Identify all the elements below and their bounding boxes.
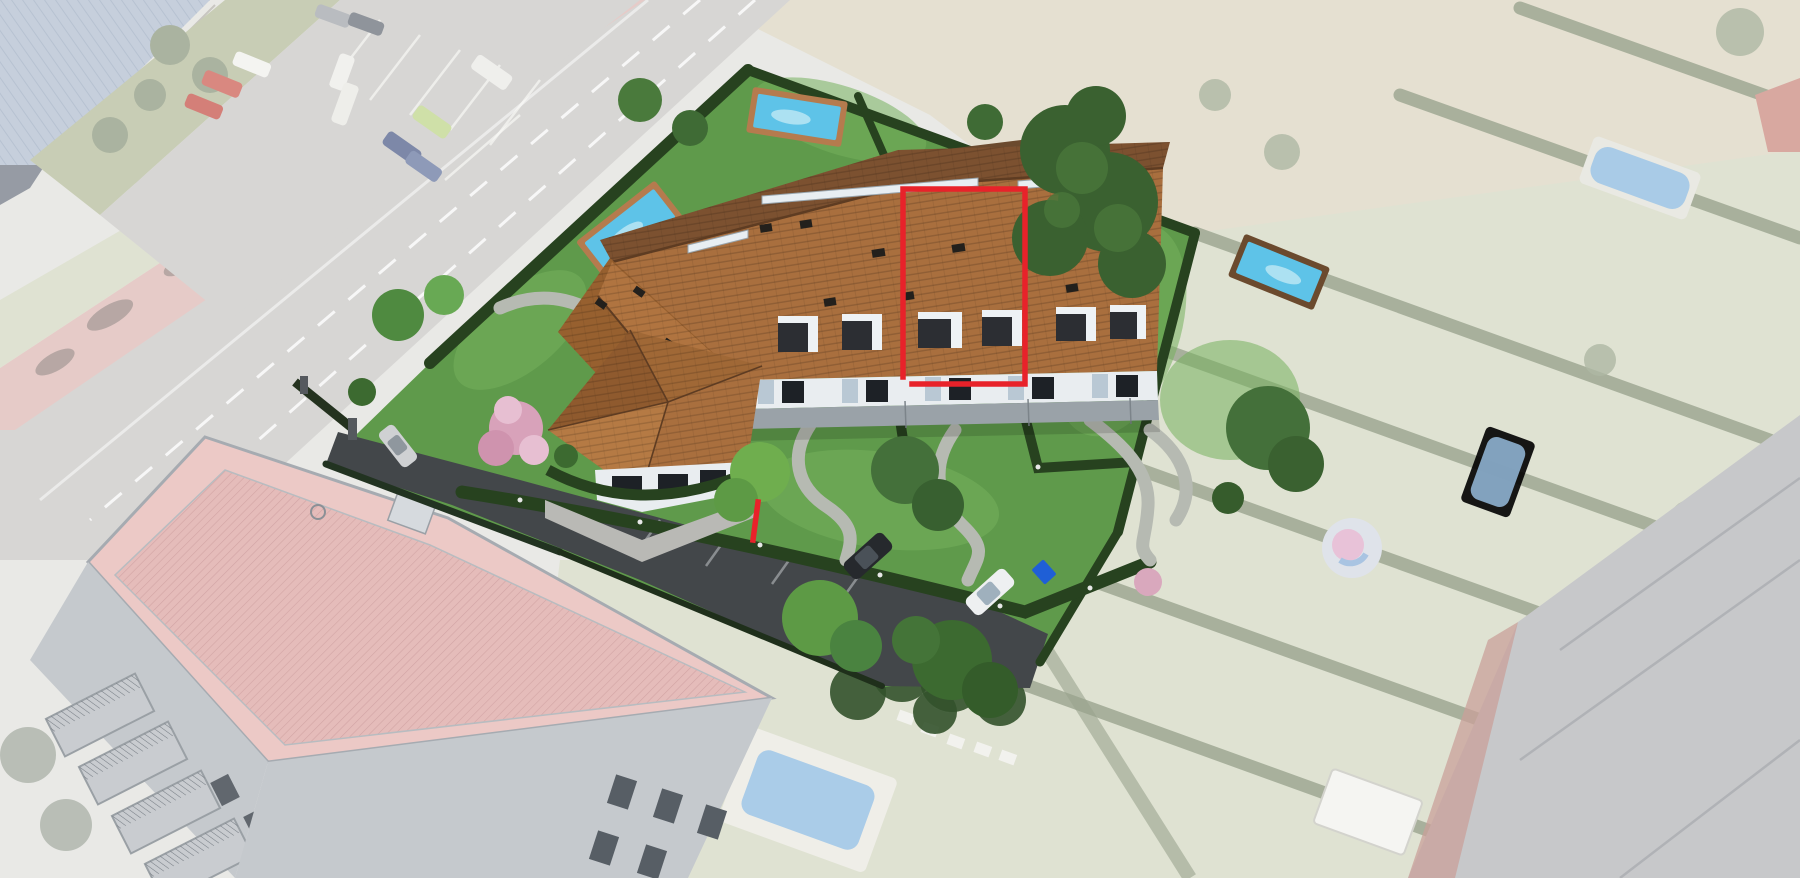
pink-shrub (1134, 568, 1162, 596)
aerial-render-image (0, 0, 1800, 878)
gate-post-2 (300, 376, 308, 394)
faded-paddling-pool (1322, 518, 1382, 578)
gate-post-1 (348, 418, 357, 440)
